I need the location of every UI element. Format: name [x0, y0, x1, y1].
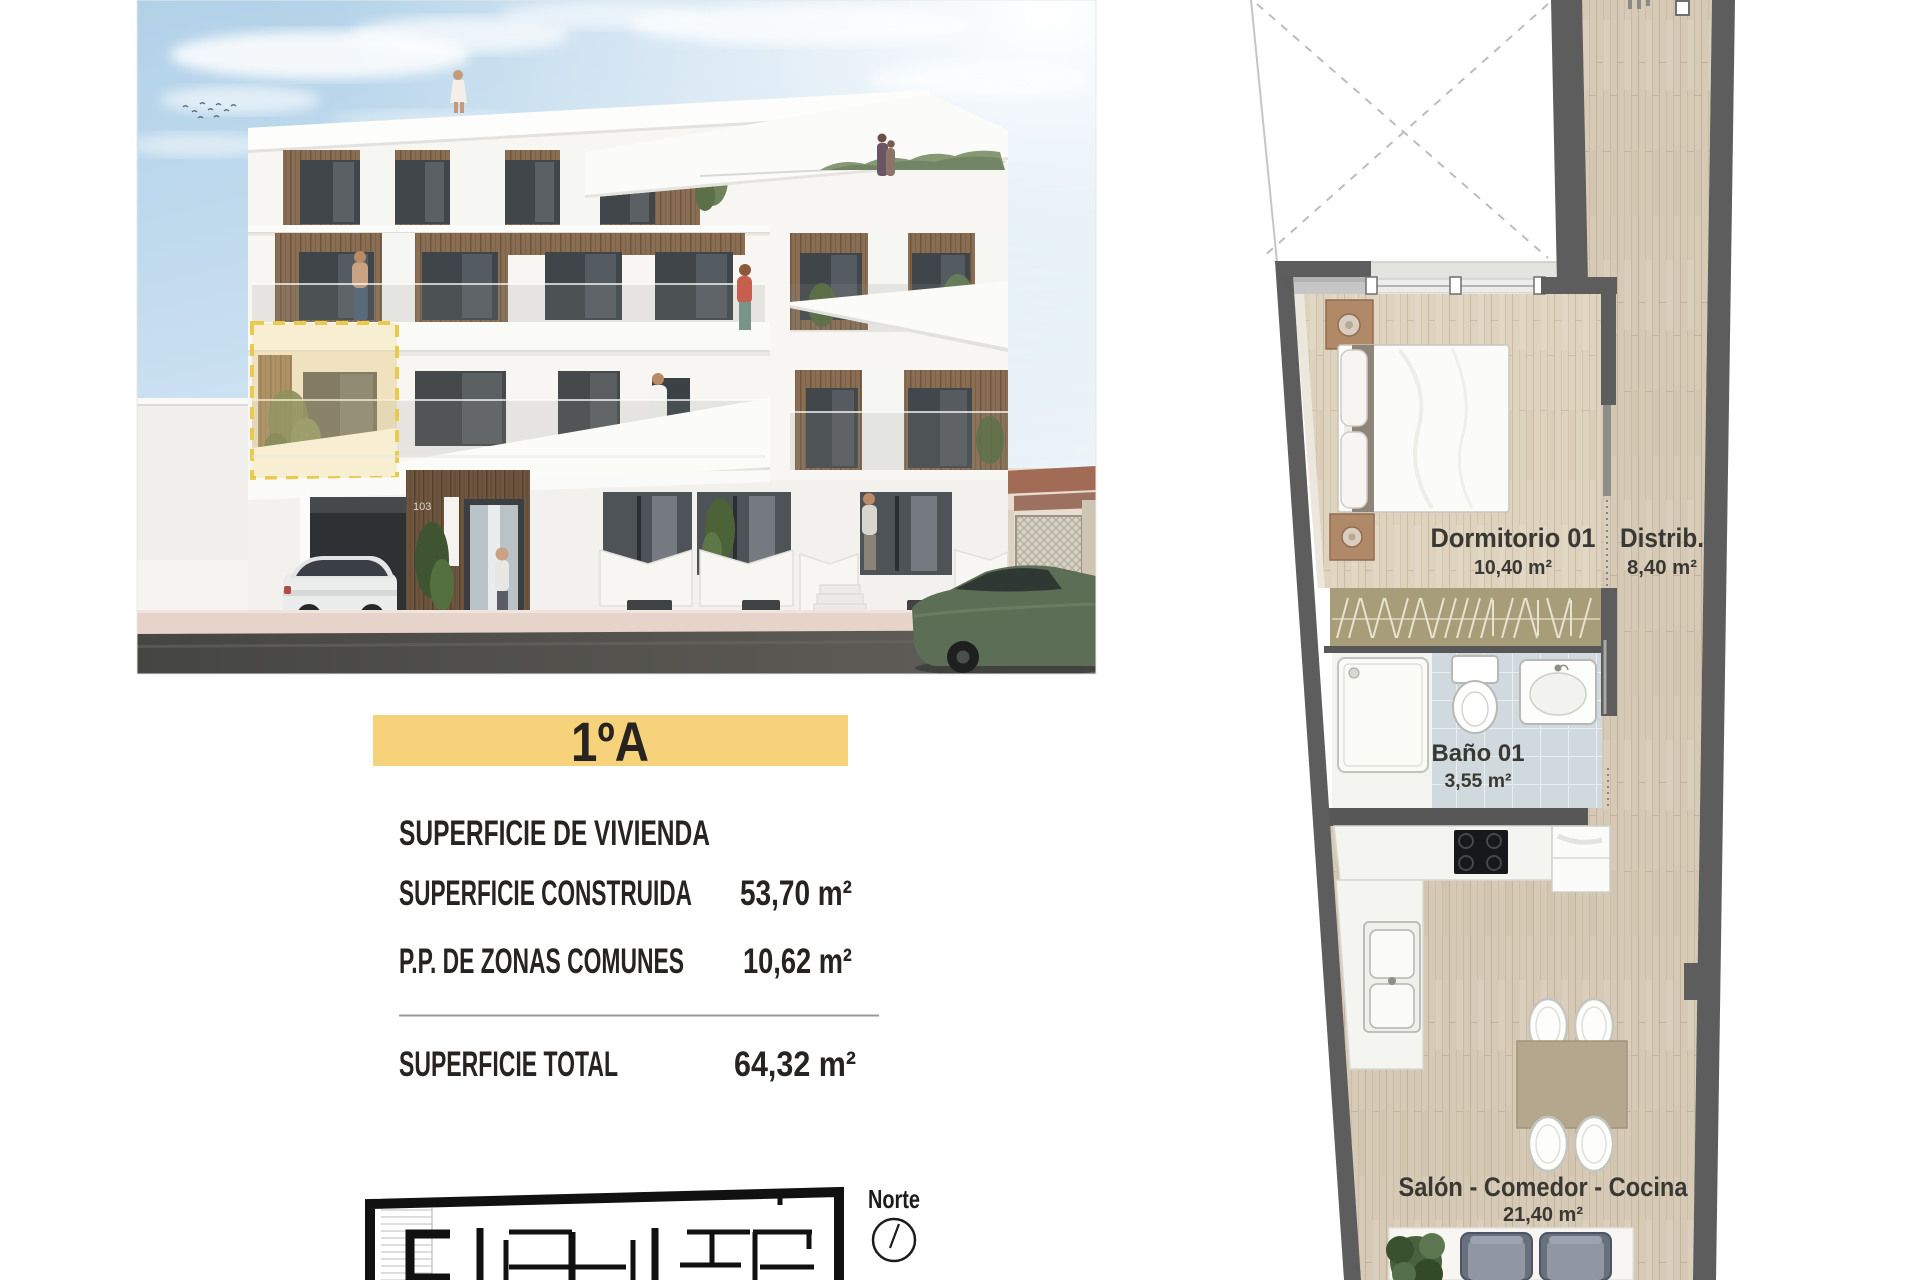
svg-text:SUPERFICIE TOTAL: SUPERFICIE TOTAL [399, 1045, 618, 1084]
svg-text:SUPERFICIE DE VIVIENDA: SUPERFICIE DE VIVIENDA [399, 814, 710, 853]
svg-text:P.P. DE ZONAS COMUNES: P.P. DE ZONAS COMUNES [399, 942, 684, 981]
svg-text:53,70 m²: 53,70 m² [740, 874, 852, 913]
svg-text:103: 103 [413, 501, 431, 513]
svg-text:10,62 m²: 10,62 m² [743, 942, 852, 981]
svg-text:SUPERFICIE CONSTRUIDA: SUPERFICIE CONSTRUIDA [399, 874, 692, 913]
svg-text:8,40 m²: 8,40 m² [1627, 557, 1697, 579]
svg-text:21,40 m²: 21,40 m² [1503, 1204, 1583, 1226]
svg-text:Distrib.: Distrib. [1620, 523, 1704, 553]
svg-text:64,32 m²: 64,32 m² [734, 1045, 856, 1084]
svg-text:3,55 m²: 3,55 m² [1445, 771, 1512, 792]
svg-text:Dormitorio 01: Dormitorio 01 [1431, 523, 1596, 553]
svg-text:1ºA: 1ºA [571, 710, 649, 773]
svg-text:Baño 01: Baño 01 [1432, 740, 1525, 767]
svg-text:10,40 m²: 10,40 m² [1474, 557, 1552, 579]
svg-text:Norte: Norte [868, 1184, 920, 1214]
svg-text:Salón - Comedor - Cocina: Salón - Comedor - Cocina [1399, 1172, 1689, 1202]
